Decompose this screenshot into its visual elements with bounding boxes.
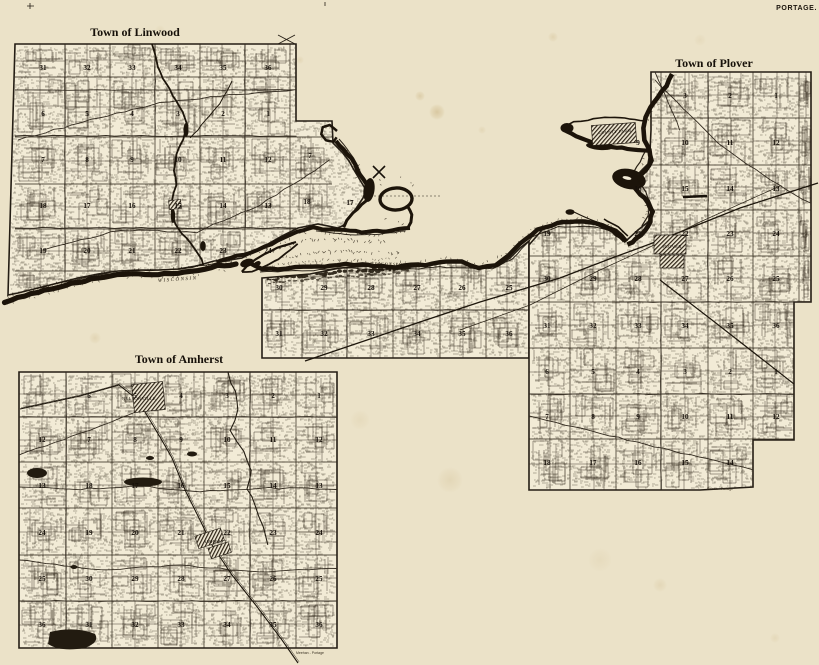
svg-text:27: 27: [413, 284, 421, 292]
svg-text:2: 2: [728, 368, 732, 376]
svg-text:19: 19: [85, 529, 93, 537]
svg-text:Town of Amherst: Town of Amherst: [135, 352, 223, 366]
svg-text:10: 10: [681, 139, 689, 147]
svg-text:10: 10: [681, 413, 689, 421]
svg-text:32: 32: [131, 621, 139, 629]
svg-text:22: 22: [174, 247, 182, 255]
svg-text:9: 9: [636, 139, 640, 147]
svg-text:10: 10: [223, 436, 231, 444]
svg-text:3: 3: [225, 392, 229, 400]
svg-text:15: 15: [223, 482, 231, 490]
svg-text:26: 26: [726, 275, 734, 283]
svg-text:26: 26: [269, 575, 277, 583]
svg-text:12: 12: [772, 413, 780, 421]
svg-text:3: 3: [176, 110, 180, 118]
svg-text:24: 24: [315, 529, 323, 537]
svg-text:1: 1: [266, 110, 270, 118]
svg-text:19: 19: [543, 230, 551, 238]
svg-text:17: 17: [83, 202, 91, 210]
svg-text:12: 12: [264, 156, 272, 164]
svg-text:16: 16: [177, 482, 185, 490]
svg-text:7: 7: [87, 436, 91, 444]
svg-text:36: 36: [505, 330, 513, 338]
svg-text:6: 6: [545, 368, 549, 376]
svg-text:35: 35: [458, 330, 466, 338]
svg-text:7: 7: [41, 156, 45, 164]
svg-text:35: 35: [219, 64, 227, 72]
svg-text:16: 16: [634, 185, 642, 193]
svg-text:18: 18: [85, 482, 93, 490]
svg-text:19: 19: [39, 247, 47, 255]
svg-text:7: 7: [545, 413, 549, 421]
svg-text:14: 14: [219, 202, 227, 210]
svg-text:9: 9: [636, 413, 640, 421]
svg-text:24: 24: [772, 230, 780, 238]
svg-text:18: 18: [39, 202, 47, 210]
svg-text:11: 11: [220, 156, 227, 164]
svg-text:27: 27: [223, 575, 231, 583]
svg-text:28: 28: [177, 575, 185, 583]
svg-text:33: 33: [634, 322, 642, 330]
svg-text:12: 12: [315, 436, 323, 444]
svg-text:25: 25: [505, 284, 513, 292]
svg-text:13: 13: [264, 202, 272, 210]
svg-text:24: 24: [38, 529, 46, 537]
svg-text:10: 10: [174, 156, 182, 164]
svg-text:8: 8: [133, 436, 137, 444]
svg-text:34: 34: [681, 322, 689, 330]
svg-text:14: 14: [726, 459, 734, 467]
svg-text:25: 25: [772, 275, 780, 283]
svg-text:36: 36: [315, 621, 323, 629]
svg-text:34: 34: [413, 330, 421, 338]
svg-text:25: 25: [38, 575, 46, 583]
svg-text:17: 17: [346, 199, 354, 207]
svg-text:35: 35: [269, 621, 277, 629]
svg-text:33: 33: [367, 330, 375, 338]
svg-text:27: 27: [681, 275, 689, 283]
svg-text:33: 33: [128, 64, 136, 72]
svg-text:25: 25: [315, 575, 323, 583]
svg-text:Meehan - Portage: Meehan - Portage: [296, 651, 324, 655]
svg-text:Town of Plover: Town of Plover: [675, 56, 753, 70]
svg-text:14: 14: [269, 482, 277, 490]
svg-text:4: 4: [636, 368, 640, 376]
svg-text:30: 30: [85, 575, 93, 583]
svg-text:15: 15: [174, 202, 182, 210]
svg-text:8: 8: [85, 156, 89, 164]
svg-text:Polson - Portage: Polson - Portage: [707, 487, 733, 491]
svg-text:23: 23: [219, 247, 227, 255]
svg-text:6: 6: [87, 392, 91, 400]
svg-text:1: 1: [317, 392, 321, 400]
svg-text:28: 28: [367, 284, 375, 292]
svg-text:31: 31: [275, 330, 283, 338]
svg-text:32: 32: [320, 330, 328, 338]
svg-text:21: 21: [177, 529, 185, 537]
svg-text:29: 29: [589, 275, 597, 283]
svg-text:28: 28: [634, 275, 642, 283]
svg-text:29: 29: [131, 575, 139, 583]
svg-text:PORTAGE.: PORTAGE.: [776, 5, 817, 12]
svg-text:23: 23: [269, 529, 277, 537]
svg-text:31: 31: [39, 64, 47, 72]
svg-text:16: 16: [128, 202, 136, 210]
svg-text:14: 14: [726, 185, 734, 193]
svg-text:36: 36: [38, 621, 46, 629]
svg-text:1: 1: [774, 92, 778, 100]
svg-text:15: 15: [681, 185, 689, 193]
svg-text:18: 18: [303, 198, 311, 206]
svg-text:11: 11: [270, 436, 277, 444]
svg-text:20: 20: [131, 529, 139, 537]
svg-text:9: 9: [130, 156, 134, 164]
svg-text:32: 32: [589, 322, 597, 330]
svg-text:15: 15: [681, 459, 689, 467]
svg-text:30: 30: [543, 275, 551, 283]
svg-text:23: 23: [726, 230, 734, 238]
svg-text:24: 24: [264, 247, 272, 255]
svg-text:36: 36: [772, 322, 780, 330]
svg-text:13: 13: [772, 185, 780, 193]
svg-text:PLOVER: PLOVER: [662, 244, 681, 249]
svg-text:21: 21: [128, 247, 136, 255]
svg-text:2: 2: [221, 110, 225, 118]
svg-text:Town of Linwood: Town of Linwood: [90, 25, 180, 39]
svg-text:5: 5: [85, 110, 89, 118]
svg-text:11: 11: [727, 413, 734, 421]
svg-text:35: 35: [726, 322, 734, 330]
svg-text:22: 22: [223, 529, 231, 537]
svg-text:21: 21: [634, 230, 642, 238]
svg-text:17: 17: [131, 482, 139, 490]
svg-text:7: 7: [308, 152, 312, 160]
svg-text:3: 3: [683, 368, 687, 376]
svg-text:3: 3: [683, 92, 687, 100]
svg-text:34: 34: [223, 621, 231, 629]
svg-text:31: 31: [85, 621, 93, 629]
svg-text:29: 29: [320, 284, 328, 292]
svg-text:8: 8: [591, 413, 595, 421]
svg-text:11: 11: [727, 139, 734, 147]
svg-text:2: 2: [728, 92, 732, 100]
svg-text:1: 1: [774, 368, 778, 376]
svg-text:22: 22: [681, 230, 689, 238]
svg-text:13: 13: [38, 482, 46, 490]
svg-text:36: 36: [264, 64, 272, 72]
svg-text:32: 32: [83, 64, 91, 72]
svg-text:13: 13: [315, 482, 323, 490]
svg-text:17: 17: [589, 459, 597, 467]
svg-text:30: 30: [275, 284, 283, 292]
svg-text:26: 26: [458, 284, 466, 292]
svg-text:4: 4: [179, 392, 183, 400]
svg-text:16: 16: [634, 459, 642, 467]
svg-text:18: 18: [543, 459, 551, 467]
svg-text:2: 2: [271, 392, 275, 400]
svg-text:9: 9: [179, 436, 183, 444]
svg-text:5: 5: [133, 392, 137, 400]
svg-text:31: 31: [543, 322, 551, 330]
svg-text:5: 5: [591, 368, 595, 376]
svg-text:12: 12: [38, 436, 46, 444]
svg-text:AMHERST: AMHERST: [203, 539, 227, 544]
svg-text:33: 33: [177, 621, 185, 629]
svg-text:6: 6: [41, 110, 45, 118]
svg-text:34: 34: [174, 64, 182, 72]
svg-text:20: 20: [83, 247, 91, 255]
svg-text:NELSONVILLE: NELSONVILLE: [122, 396, 156, 401]
svg-text:12: 12: [772, 139, 780, 147]
svg-text:4: 4: [130, 110, 134, 118]
